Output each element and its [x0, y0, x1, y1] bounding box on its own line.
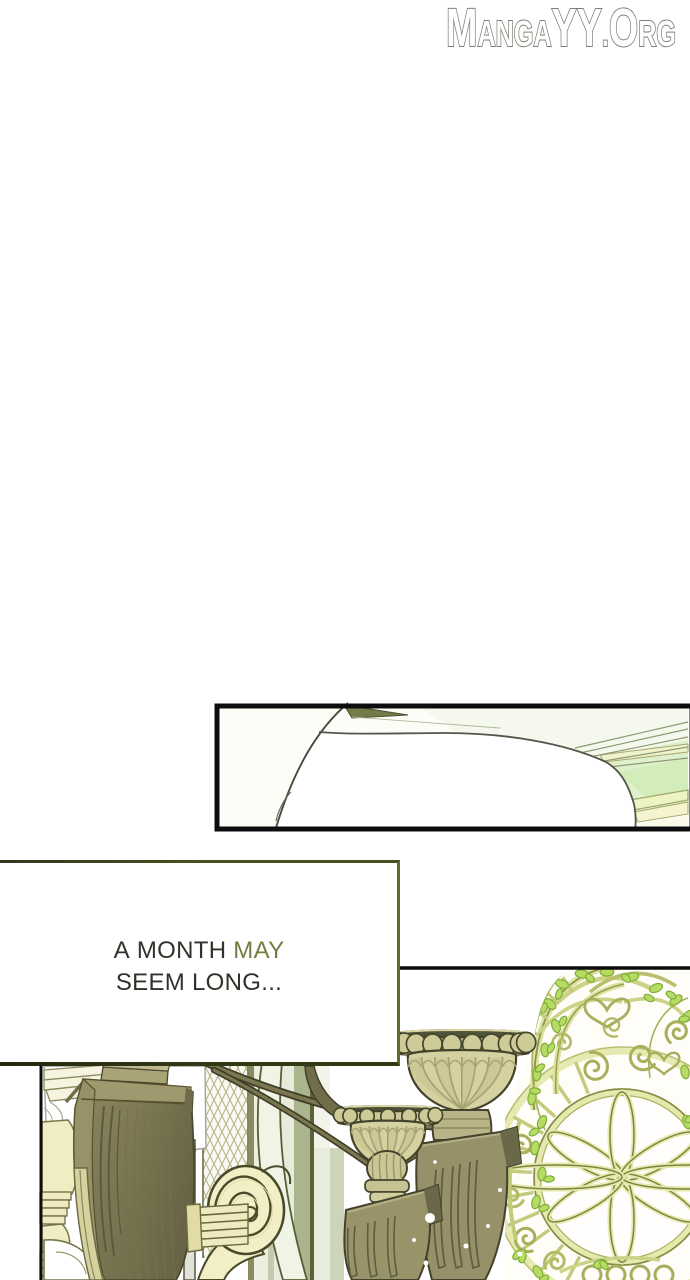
svg-text:MANGAYY.ORG: MANGAYY.ORG [446, 0, 676, 58]
